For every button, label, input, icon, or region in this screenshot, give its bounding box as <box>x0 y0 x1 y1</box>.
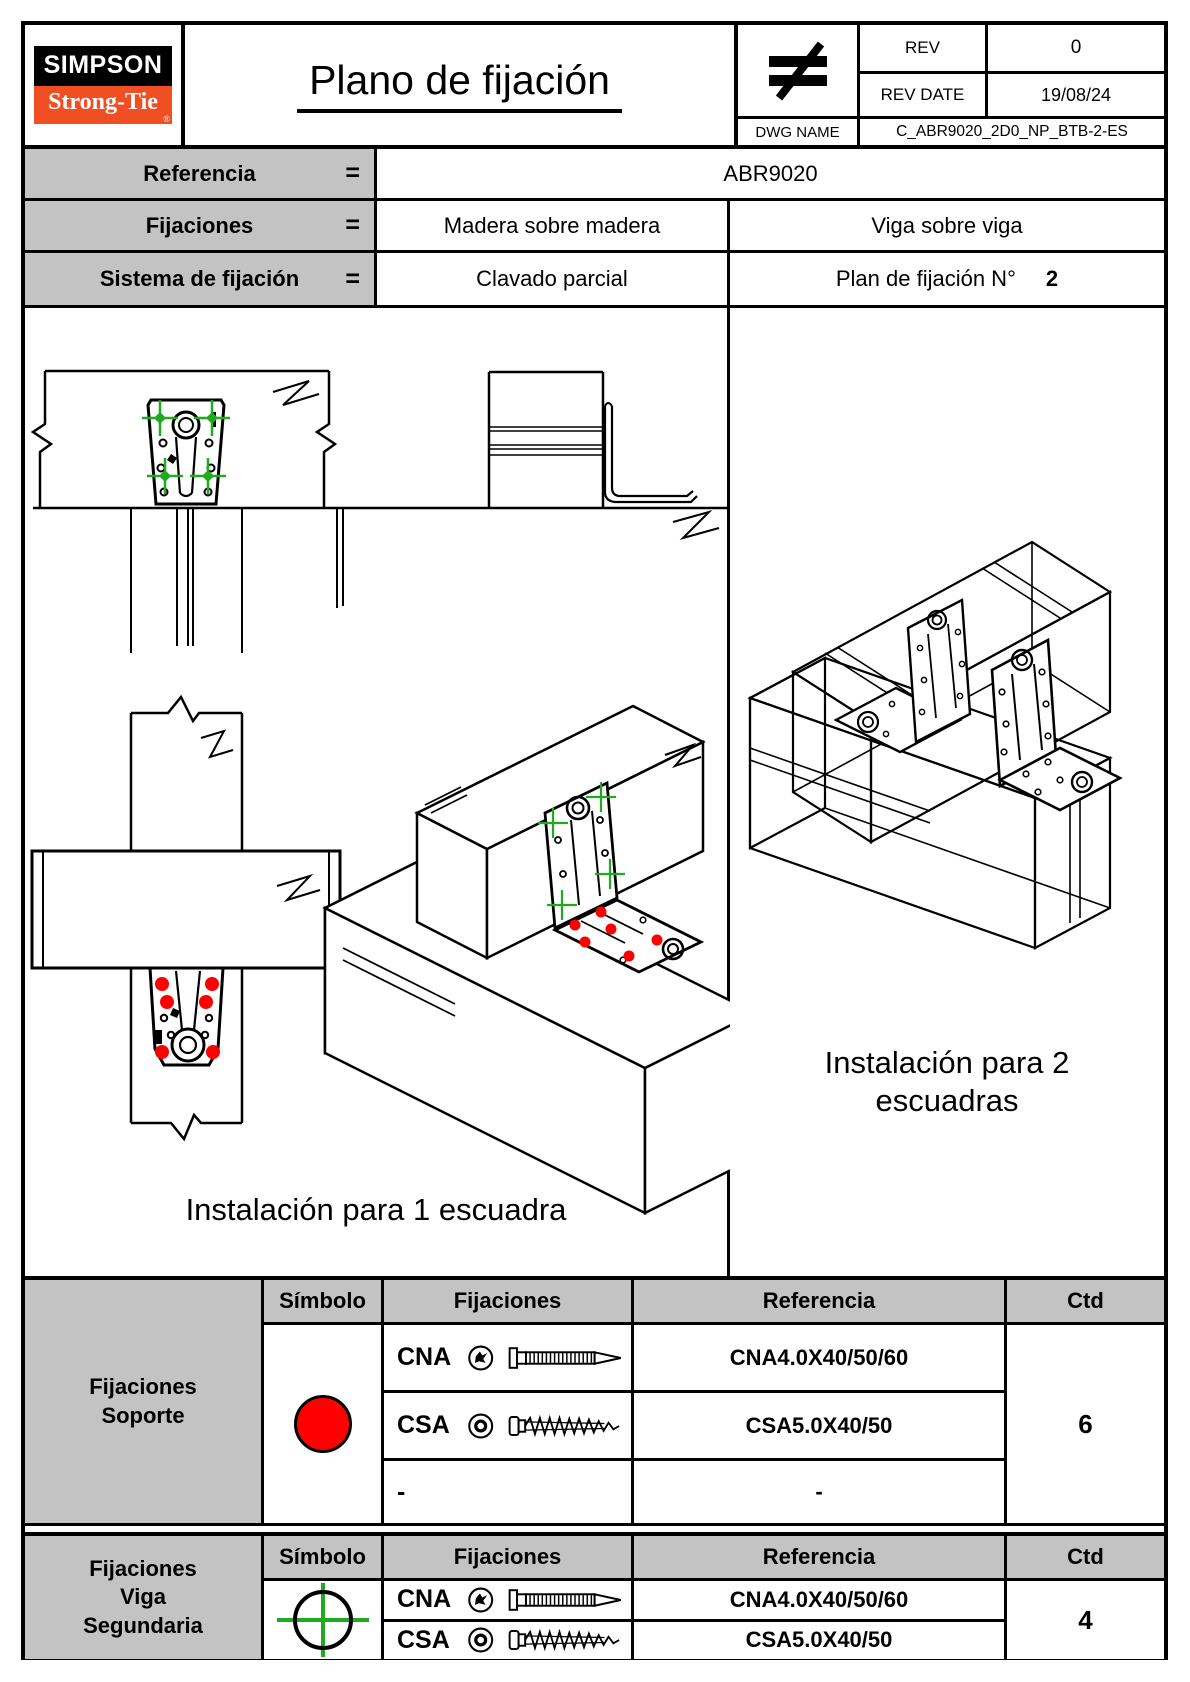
strongtie-logo: Strong-Tie ® <box>34 86 172 124</box>
csa-head-icon <box>466 1408 495 1444</box>
cna-reference: CNA4.0X40/50/60 <box>634 1322 1007 1390</box>
csa-reference: CSA5.0X40/50 <box>634 1390 1007 1458</box>
nail-icon <box>508 1583 631 1617</box>
cna-head-icon <box>466 1340 495 1376</box>
fijaciones-value-right: Viga sobre viga <box>727 201 1164 250</box>
beam-fixings-table: Fijaciones Viga Segundaria Símbolo Fijac… <box>25 1532 1164 1659</box>
fixings-header: Fijaciones <box>384 1280 634 1322</box>
caption-two-line2: escuadras <box>730 1082 1164 1120</box>
red-circle-symbol <box>294 1395 352 1453</box>
support-group-label: Fijaciones Soporte <box>25 1280 264 1523</box>
csa-fixing-cell: CSA <box>384 1619 634 1660</box>
installation-one-bracket-drawing <box>25 308 730 1280</box>
symbol-header: Símbolo <box>264 1536 384 1578</box>
nail-icon <box>508 1341 631 1375</box>
support-qty: 6 <box>1007 1322 1164 1523</box>
referencia-value: ABR9020 <box>377 149 1164 198</box>
csa-fixing-cell: CSA <box>384 1390 634 1458</box>
cna-head-icon <box>466 1582 495 1618</box>
not-equal-logo <box>738 25 860 119</box>
cna-fixing-cell: CNA <box>384 1578 634 1619</box>
installation-two-brackets-drawing <box>730 308 1164 1280</box>
not-equal-icon <box>759 40 837 102</box>
simpson-logo: SIMPSON <box>34 46 172 86</box>
drawing-area: Instalación para 1 escuadra <box>25 308 1164 1280</box>
sistema-label: Sistema de fijación = <box>25 253 377 305</box>
cna-reference: CNA4.0X40/50/60 <box>634 1578 1007 1619</box>
plan-number-cell: Plan de fijación N° 2 <box>727 253 1164 305</box>
fijaciones-label: Fijaciones = <box>25 201 377 250</box>
csa-code: CSA <box>397 1626 453 1655</box>
green-crosshair-symbol <box>269 1581 377 1659</box>
panel-one-bracket: Instalación para 1 escuadra <box>25 308 730 1276</box>
drawing-sheet: SIMPSON Strong-Tie ® Plano de fijación R… <box>21 21 1168 1660</box>
group-line: Viga <box>120 1583 166 1612</box>
referencia-label-text: Referencia <box>143 161 256 187</box>
info-row-referencia: Referencia = ABR9020 <box>25 149 1164 201</box>
cna-code: CNA <box>397 1343 453 1372</box>
caption-one-bracket: Instalación para 1 escuadra <box>25 1192 727 1228</box>
reference-table: Referencia = ABR9020 Fijaciones = Madera… <box>25 149 1164 308</box>
rev-date-value: 19/08/24 <box>988 74 1164 119</box>
rev-label: REV <box>860 25 988 74</box>
dash-reference: - <box>634 1458 1007 1523</box>
strongtie-logo-text: Strong-Tie <box>48 89 158 115</box>
title-area: Plano de fijación <box>185 25 734 145</box>
fixings-header: Fijaciones <box>384 1536 634 1578</box>
plan-number-label: Plan de fijación N° <box>836 266 1016 292</box>
cna-code: CNA <box>397 1585 453 1614</box>
rev-value: 0 <box>988 25 1164 74</box>
equals-sign: = <box>345 265 360 294</box>
cna-fixing-cell: CNA <box>384 1322 634 1390</box>
support-symbol-cell <box>264 1322 384 1523</box>
group-line: Fijaciones <box>89 1373 197 1402</box>
info-row-sistema: Sistema de fijación = Clavado parcial Pl… <box>25 253 1164 305</box>
caption-two-brackets: Instalación para 2 escuadras <box>730 1044 1164 1120</box>
rev-date-label: REV DATE <box>860 74 988 119</box>
revision-block: REV 0 REV DATE 19/08/24 DWG NAME C_ABR90… <box>734 25 1164 145</box>
qty-header: Ctd <box>1007 1280 1164 1322</box>
group-line: Segundaria <box>83 1612 203 1641</box>
reference-header: Referencia <box>634 1536 1007 1578</box>
panel-two-brackets: Instalación para 2 escuadras <box>730 308 1164 1276</box>
caption-two-line1: Instalación para 2 <box>730 1044 1164 1082</box>
sistema-value-left: Clavado parcial <box>377 253 727 305</box>
csa-code: CSA <box>397 1411 453 1440</box>
beam-symbol-cell <box>264 1578 384 1659</box>
info-row-fijaciones: Fijaciones = Madera sobre madera Viga so… <box>25 201 1164 253</box>
sistema-label-text: Sistema de fijación <box>100 266 299 292</box>
brand-logo: SIMPSON Strong-Tie ® <box>25 25 185 145</box>
beam-group-label: Fijaciones Viga Segundaria <box>25 1536 264 1659</box>
symbol-header: Símbolo <box>264 1280 384 1322</box>
sheet-header: SIMPSON Strong-Tie ® Plano de fijación R… <box>25 25 1164 149</box>
csa-reference: CSA5.0X40/50 <box>634 1619 1007 1660</box>
screw-icon <box>508 1409 631 1443</box>
equals-sign: = <box>345 159 360 188</box>
page-title: Plano de fijación <box>297 57 622 113</box>
fijaciones-value-left: Madera sobre madera <box>377 201 727 250</box>
dash-fixing-cell: - <box>384 1458 634 1523</box>
equals-sign: = <box>345 211 360 240</box>
referencia-label: Referencia = <box>25 149 377 198</box>
qty-header: Ctd <box>1007 1536 1164 1578</box>
csa-head-icon <box>466 1622 495 1658</box>
registered-mark-icon: ® <box>163 114 170 124</box>
fijaciones-label-text: Fijaciones <box>146 213 254 239</box>
plan-number-value: 2 <box>1046 266 1058 292</box>
support-fixings-table: Fijaciones Soporte Símbolo Fijaciones Re… <box>25 1280 1164 1526</box>
dwg-name-value: C_ABR9020_2D0_NP_BTB-2-ES <box>860 119 1164 145</box>
beam-qty: 4 <box>1007 1578 1164 1659</box>
screw-icon <box>508 1623 631 1657</box>
dwg-name-label: DWG NAME <box>738 119 860 145</box>
reference-header: Referencia <box>634 1280 1007 1322</box>
group-line: Fijaciones <box>89 1555 197 1584</box>
dash-code: - <box>397 1478 453 1507</box>
group-line: Soporte <box>101 1402 184 1431</box>
